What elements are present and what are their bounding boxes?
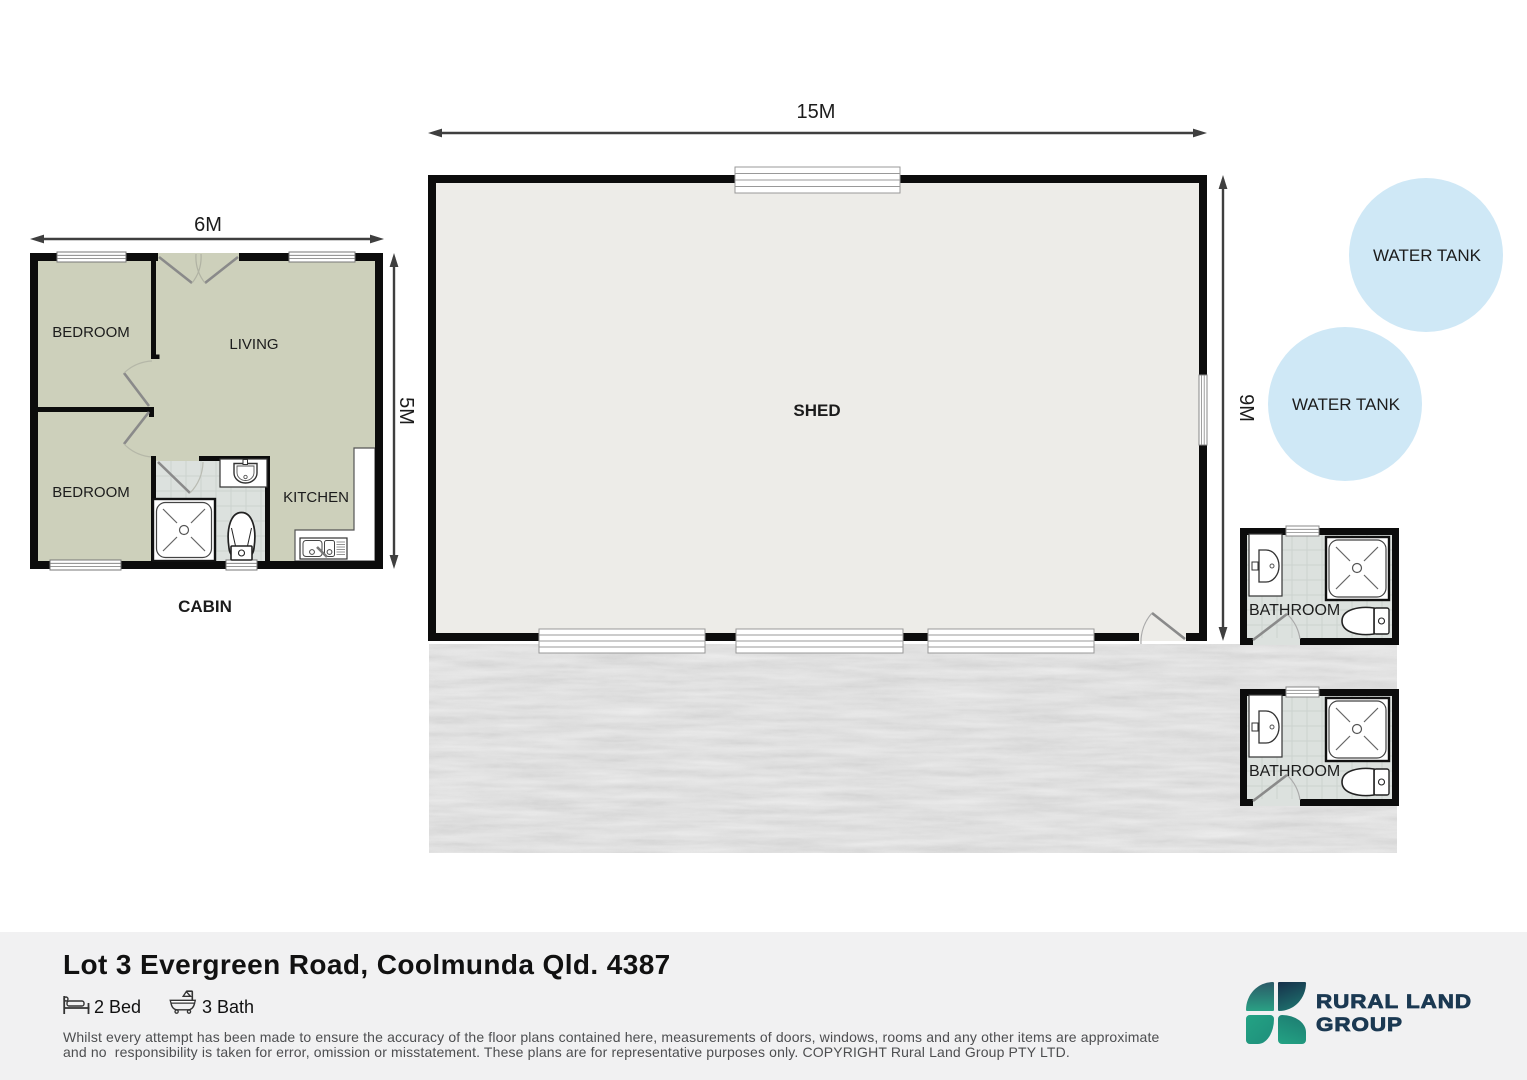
svg-text:BATHROOM: BATHROOM (1249, 602, 1340, 619)
svg-text:BEDROOM: BEDROOM (52, 324, 130, 341)
svg-text:SHED: SHED (793, 401, 840, 420)
svg-text:WATER TANK: WATER TANK (1292, 395, 1401, 414)
svg-text:5M: 5M (395, 397, 417, 425)
svg-text:15M: 15M (797, 101, 836, 123)
svg-text:LIVING: LIVING (229, 336, 278, 353)
svg-text:9M: 9M (1235, 394, 1257, 422)
svg-text:BEDROOM: BEDROOM (52, 484, 130, 501)
svg-text:WATER TANK: WATER TANK (1373, 246, 1482, 265)
svg-text:KITCHEN: KITCHEN (283, 489, 349, 506)
svg-text:6M: 6M (194, 214, 222, 236)
svg-text:CABIN: CABIN (178, 597, 232, 616)
svg-text:BATHROOM: BATHROOM (1249, 763, 1340, 780)
